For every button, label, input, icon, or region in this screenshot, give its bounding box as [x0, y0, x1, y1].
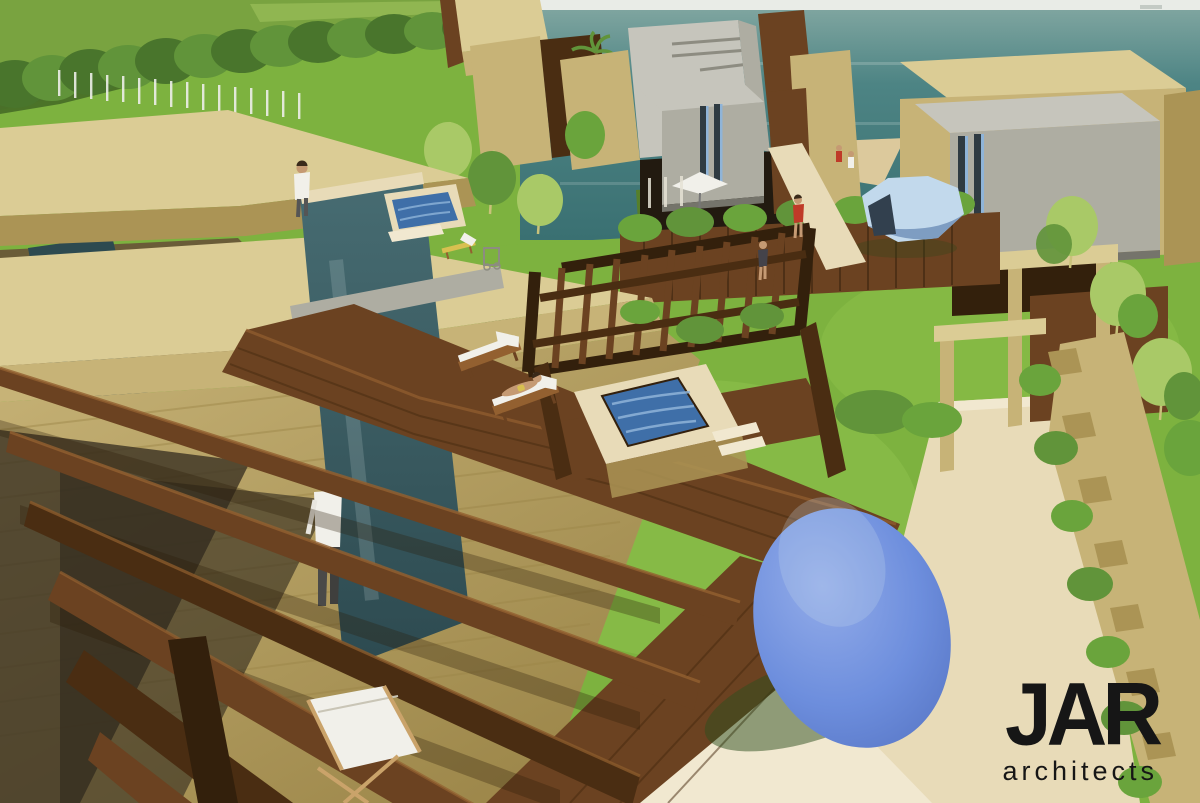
figure-small [836, 145, 842, 162]
distant-ship [1140, 5, 1162, 9]
logo-brand-text: JAR [1002, 676, 1158, 754]
figure-small [848, 151, 854, 168]
jar-architects-logo: JAR architects [1002, 680, 1158, 787]
architectural-render: JAR architects [0, 0, 1200, 803]
